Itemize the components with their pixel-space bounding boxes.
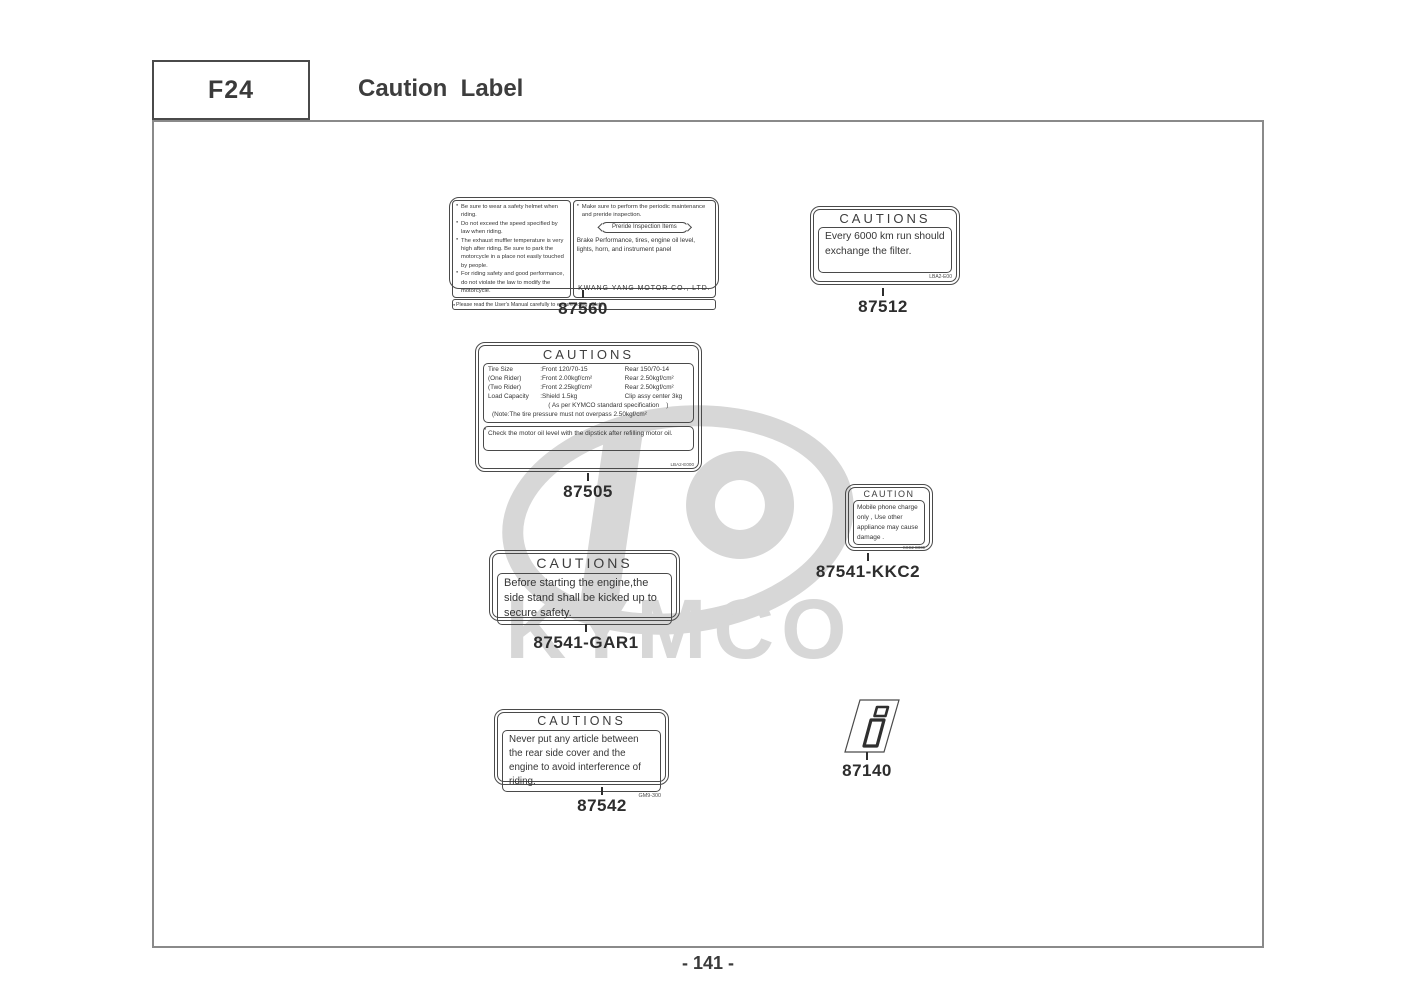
table-cell: Clip assy center 3kg xyxy=(625,393,689,402)
table-row: (One Rider) :Front 2.00kgf/cm² Rear 2.50… xyxy=(488,375,689,384)
part-number-87541-gar1: 87541-GAR1 xyxy=(533,633,638,653)
part-number-87140: 87140 xyxy=(842,761,892,781)
leader-line xyxy=(587,473,589,481)
label-87560-left-column: Be sure to wear a safety helmet when rid… xyxy=(452,200,571,298)
caution-item: Be sure to wear a safety helmet when rid… xyxy=(456,203,567,220)
sticker-outline xyxy=(845,700,899,752)
label-print-code: KKC2-E000 xyxy=(853,545,925,550)
label-body: Before starting the engine,the side stan… xyxy=(497,573,672,625)
table-row: Tire Size :Front 120/70-15 Rear 150/70-1… xyxy=(488,366,689,375)
catalog-page: { "header": { "code": "F24", "title": "C… xyxy=(0,0,1415,1000)
caution-label-87542: CAUTIONS Never put any article between t… xyxy=(494,709,669,785)
table-cell: (Two Rider) xyxy=(488,384,540,393)
table-row: (Two Rider) :Front 2.25kgf/cm² Rear 2.50… xyxy=(488,384,689,393)
i-dot xyxy=(875,707,889,716)
caution-item: The exhaust muffler temperature is very … xyxy=(456,237,567,271)
table-cell: (One Rider) xyxy=(488,375,540,384)
part-callout-87140: 87140 xyxy=(797,752,937,781)
oil-check-note: Check the motor oil level with the dipst… xyxy=(483,426,694,451)
caution-item: Do not exceed the speed specified by law… xyxy=(456,220,567,237)
label-print-code: LBA2-E000 xyxy=(483,462,694,467)
table-cell: :Front 2.25kgf/cm² xyxy=(540,384,624,393)
label-print-code: LBA2-E00 xyxy=(818,274,952,280)
info-sticker-icon xyxy=(836,698,902,756)
label-87560-right-column: Make sure to perform the periodic mainte… xyxy=(573,200,716,298)
table-row: Load Capacity :Shield 1.5kg Clip assy ce… xyxy=(488,393,689,402)
spec-note: ( As per KYMCO standard specification ) xyxy=(488,402,689,411)
leader-line xyxy=(882,288,884,296)
table-cell: Tire Size xyxy=(488,366,540,375)
part-callout-87541-kkc2: 87541-KKC2 xyxy=(798,553,938,582)
part-number-87560: 87560 xyxy=(558,299,608,319)
part-number-87542: 87542 xyxy=(577,796,627,816)
inspection-items-text: Brake Performance, tires, engine oil lev… xyxy=(577,236,712,255)
maintenance-note: Make sure to perform the periodic mainte… xyxy=(577,203,712,220)
label-body: Every 6000 km run should exchange the fi… xyxy=(818,227,952,273)
label-body: Never put any article between the rear s… xyxy=(502,730,661,793)
part-number-87505: 87505 xyxy=(563,482,613,502)
table-cell: :Shield 1.5kg xyxy=(540,393,624,402)
table-cell: Rear 2.50kgf/cm² xyxy=(625,375,689,384)
label-body: Mobile phone charge only , Use other app… xyxy=(853,500,925,545)
table-cell: :Front 2.00kgf/cm² xyxy=(540,375,624,384)
leader-line xyxy=(866,752,868,760)
section-code: F24 xyxy=(208,76,254,105)
section-code-box: F24 xyxy=(152,60,310,120)
part-callout-87542: 87542 xyxy=(532,787,672,816)
caution-label-87541-kkc2: CAUTION Mobile phone charge only , Use o… xyxy=(845,484,933,551)
preride-inspection-banner: Preride Inspection Items xyxy=(601,222,688,233)
table-cell: :Front 120/70-15 xyxy=(540,366,624,375)
caution-label-87505: CAUTIONS Tire Size :Front 120/70-15 Rear… xyxy=(475,342,702,472)
i-stem xyxy=(864,720,884,746)
label-title: CAUTIONS xyxy=(497,555,672,573)
pressure-note: (Note:The tire pressure must not overpas… xyxy=(488,411,689,420)
part-callout-87512: 87512 xyxy=(813,288,953,317)
leader-line xyxy=(601,787,603,795)
caution-label-87541-gar1: CAUTIONS Before starting the engine,the … xyxy=(489,550,680,621)
page-number: - 141 - xyxy=(152,953,1264,974)
leader-line xyxy=(867,553,869,561)
label-title: CAUTIONS xyxy=(818,211,952,227)
caution-label-87512: CAUTIONS Every 6000 km run should exchan… xyxy=(810,206,960,285)
table-cell: Load Capacity xyxy=(488,393,540,402)
tire-spec-table: Tire Size :Front 120/70-15 Rear 150/70-1… xyxy=(483,363,694,423)
label-title: CAUTIONS xyxy=(502,714,661,730)
part-callout-87505: 87505 xyxy=(518,473,658,502)
label-title: CAUTION xyxy=(853,489,925,500)
part-callout-87541-gar1: 87541-GAR1 xyxy=(516,624,656,653)
leader-line xyxy=(582,290,584,298)
page-title: Caution Label xyxy=(358,60,523,118)
caution-label-87560: Be sure to wear a safety helmet when rid… xyxy=(449,197,719,289)
table-cell: Rear 150/70-14 xyxy=(625,366,689,375)
table-cell: Rear 2.50kgf/cm² xyxy=(625,384,689,393)
part-number-87541-kkc2: 87541-KKC2 xyxy=(816,562,920,582)
label-title: CAUTIONS xyxy=(483,347,694,363)
part-number-87512: 87512 xyxy=(858,297,908,317)
watermark-ring-dot xyxy=(686,451,794,559)
part-callout-87560: 87560 xyxy=(513,290,653,319)
leader-line xyxy=(585,624,587,632)
